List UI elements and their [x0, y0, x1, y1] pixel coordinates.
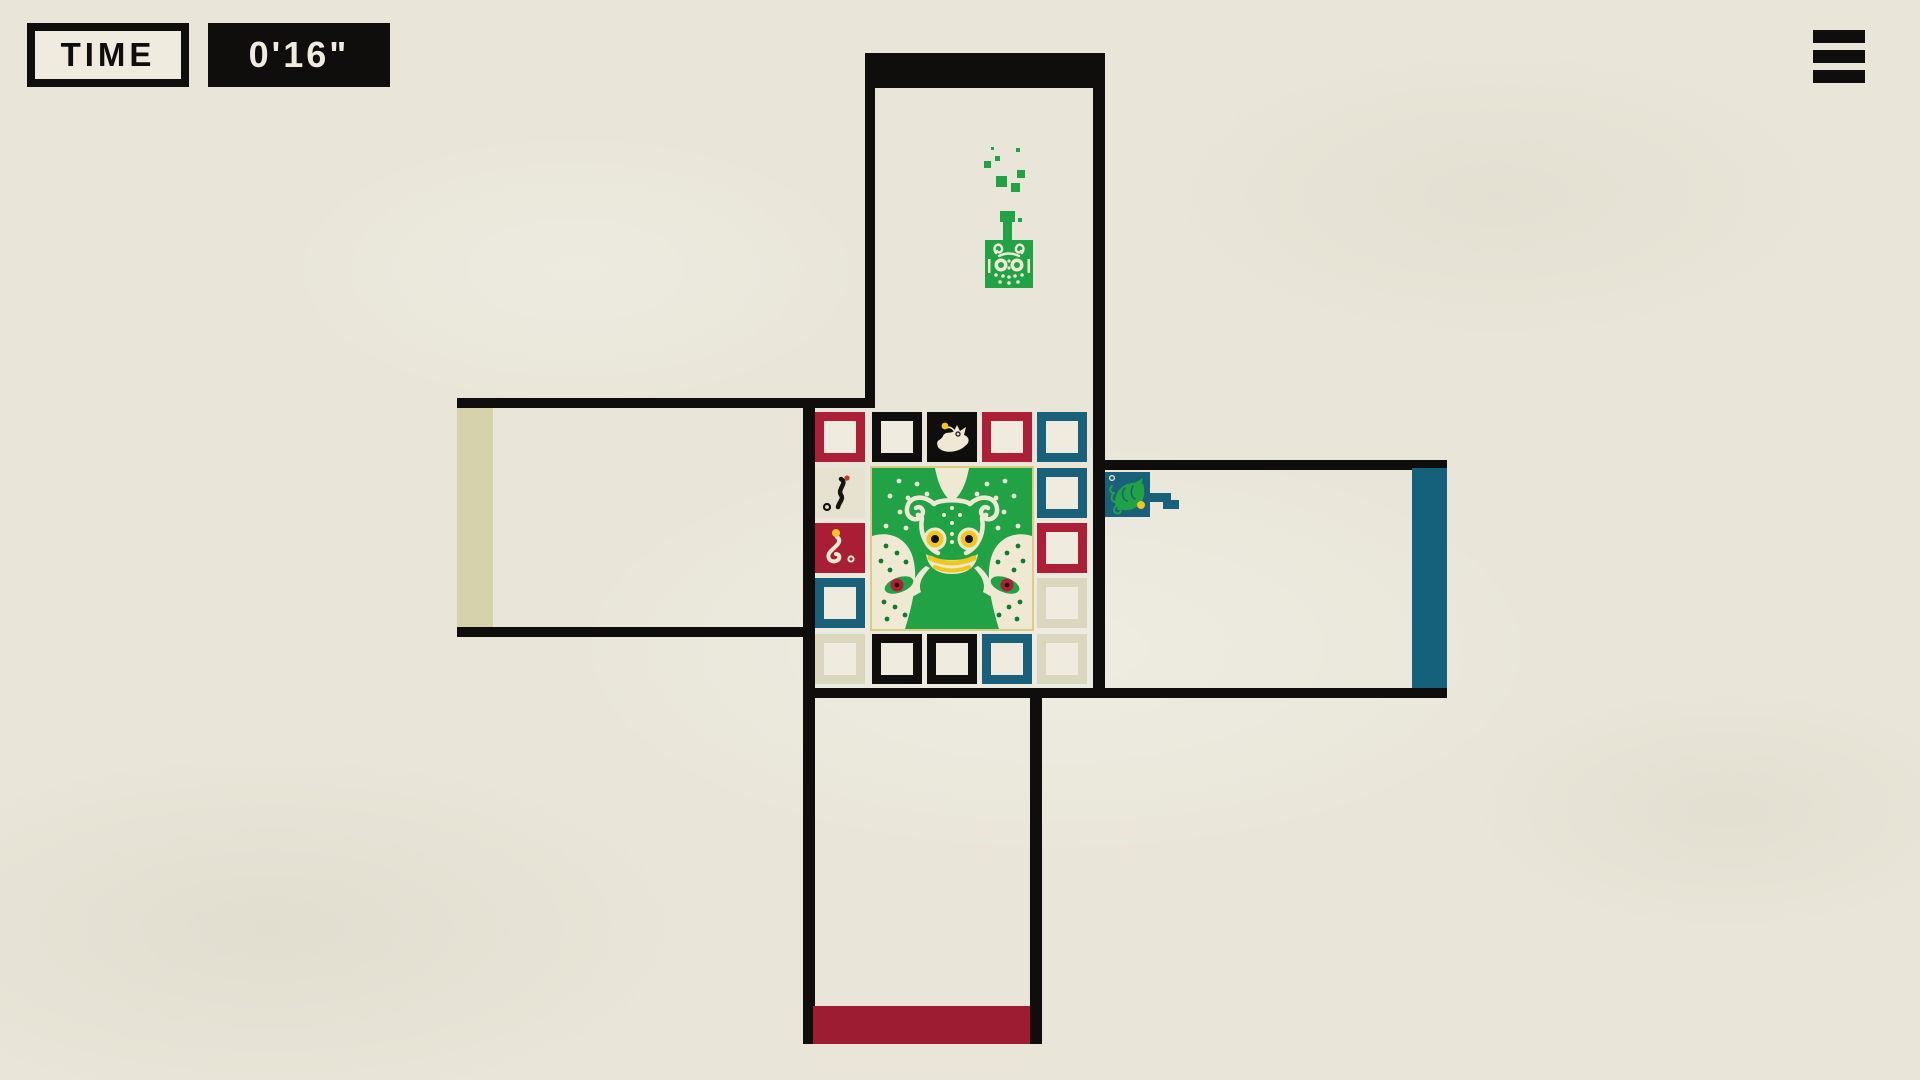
exit-door-left — [457, 408, 493, 627]
grid-cell-r0c3[interactable] — [982, 412, 1032, 462]
grid-cell-r0c2[interactable] — [927, 412, 977, 462]
spore-particle — [1011, 183, 1020, 192]
spore-particle — [1016, 148, 1020, 152]
spore-particle — [1017, 170, 1025, 178]
grid-cell-r4c1[interactable] — [872, 634, 922, 684]
time-label-box: TIME — [27, 23, 189, 87]
time-value: 0'16" — [249, 34, 350, 76]
worm-piece-icon — [815, 468, 865, 518]
bird-piece-icon — [927, 412, 977, 462]
chameleon-piece[interactable] — [1105, 472, 1150, 517]
grid-cell-r1c4[interactable] — [1037, 468, 1087, 518]
timer-display: 0'16" — [208, 23, 390, 87]
grid-cell-r3c4[interactable] — [1037, 578, 1087, 628]
game-screen: TIME 0'16" — [0, 0, 1920, 1080]
grid-cell-r0c1[interactable] — [872, 412, 922, 462]
exit-door-bottom — [813, 1006, 1030, 1044]
grid-cell-r1c0[interactable] — [815, 468, 865, 518]
wall-segment — [1093, 53, 1105, 698]
grid-cell-r0c4[interactable] — [1037, 412, 1087, 462]
wall-segment — [1093, 460, 1447, 470]
wall-segment — [865, 53, 875, 408]
hamburger-icon — [1813, 30, 1865, 43]
grid-cell-r4c3[interactable] — [982, 634, 1032, 684]
grid-cell-r3c0[interactable] — [815, 578, 865, 628]
grid-cell-r4c2[interactable] — [927, 634, 977, 684]
grid-cell-r4c4[interactable] — [1037, 634, 1087, 684]
spore-particle — [995, 156, 1000, 161]
frog-totem-art — [872, 468, 1032, 629]
spore-particle — [991, 147, 994, 150]
menu-button[interactable] — [1813, 30, 1865, 83]
grid-cell-r2c0[interactable] — [815, 523, 865, 573]
spore-particle — [984, 161, 991, 168]
green-frog-stem-tip — [1000, 211, 1015, 222]
green-frog-stem — [1003, 221, 1012, 241]
wall-segment — [457, 627, 813, 637]
wall-segment — [1030, 698, 1042, 1044]
grid-cell-r4c0[interactable] — [815, 634, 865, 684]
snake-piece-icon — [815, 523, 865, 573]
spore-particle — [1018, 218, 1022, 222]
grid-cell-r2c4[interactable] — [1037, 523, 1087, 573]
wall-segment — [803, 398, 815, 1044]
time-label: TIME — [61, 36, 156, 74]
exit-door-right — [1412, 468, 1447, 688]
wall-segment — [803, 688, 1447, 698]
exit-door-top — [865, 53, 1103, 88]
grid-cell-r0c0[interactable] — [815, 412, 865, 462]
spore-particle — [996, 176, 1007, 187]
chameleon-tongue — [1163, 500, 1179, 509]
green-frog-piece[interactable] — [985, 240, 1033, 288]
